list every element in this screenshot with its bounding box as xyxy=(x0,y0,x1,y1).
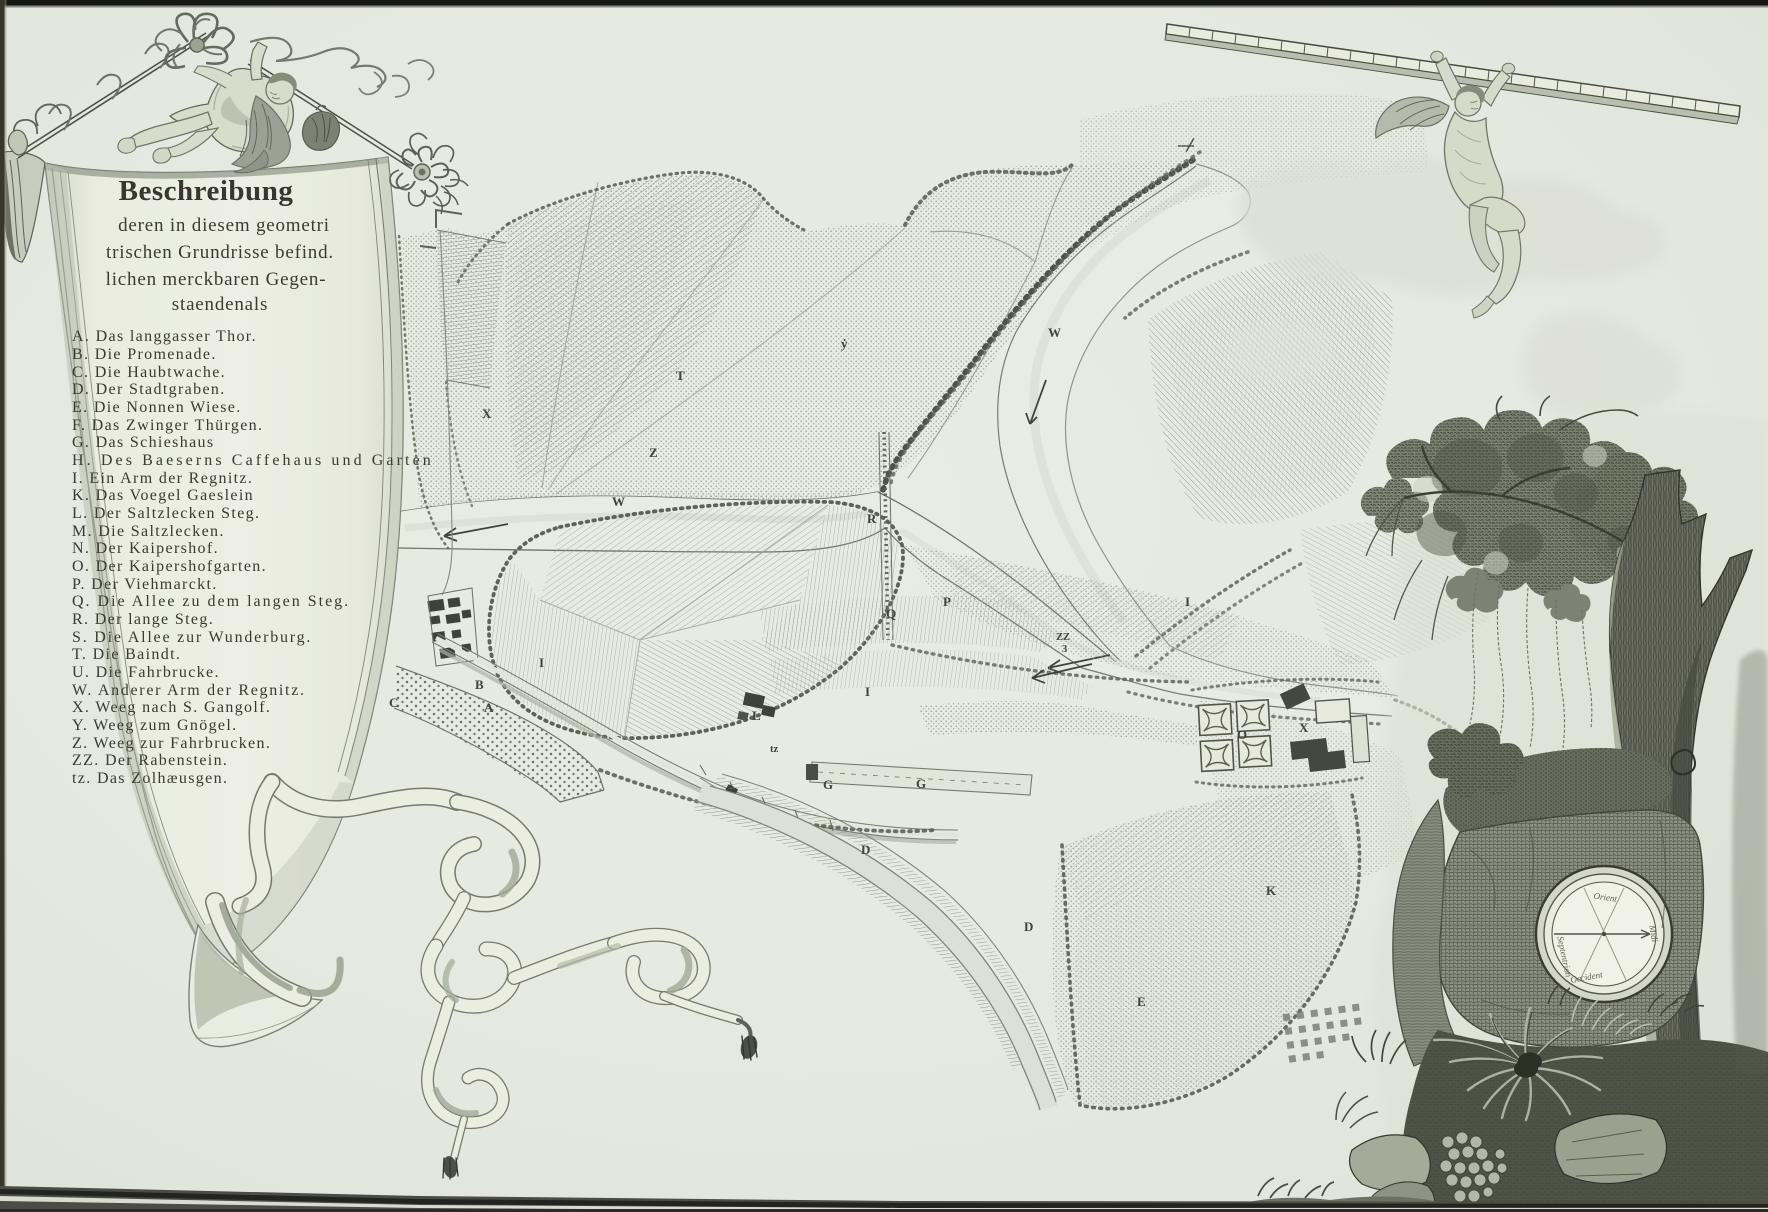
svg-text:U. Die Fahrbrucke.: U. Die Fahrbrucke. xyxy=(72,664,220,681)
svg-text:W. Anderer Arm der Regnitz.: W. Anderer Arm der Regnitz. xyxy=(72,682,306,699)
svg-text:Y. Weeg zum Gnögel.: Y. Weeg zum Gnögel. xyxy=(72,717,238,734)
svg-text:M. Die Saltzlecken.: M. Die Saltzlecken. xyxy=(72,523,225,540)
svg-text:O: O xyxy=(1237,727,1247,742)
svg-text:deren in diesem geometri: deren in diesem geometri xyxy=(118,215,330,236)
svg-text:D: D xyxy=(1024,919,1033,934)
svg-text:X. Weeg nach S. Gangolf.: X. Weeg nach S. Gangolf. xyxy=(72,699,271,716)
svg-text:N. Der Kaipershof.: N. Der Kaipershof. xyxy=(72,540,219,557)
svg-text:B. Die Promenade.: B. Die Promenade. xyxy=(72,346,217,363)
svg-text:ẏ: ẏ xyxy=(841,336,848,351)
svg-text:P: P xyxy=(943,594,951,609)
svg-text:R: R xyxy=(867,511,877,526)
svg-text:C: C xyxy=(389,695,398,710)
svg-text:trischen Grundrisse befind.: trischen Grundrisse befind. xyxy=(106,242,334,263)
svg-text:X: X xyxy=(482,406,492,421)
svg-text:S. Die Allee zur Wunderburg.: S. Die Allee zur Wunderburg. xyxy=(72,629,312,646)
svg-text:Z: Z xyxy=(649,445,658,460)
svg-text:A: A xyxy=(484,700,494,715)
svg-text:lichen merckbaren Gegen-: lichen merckbaren Gegen- xyxy=(106,269,327,290)
svg-text:D: D xyxy=(861,842,870,857)
svg-text:L. Der Saltzlecken Steg.: L. Der Saltzlecken Steg. xyxy=(72,505,260,522)
svg-text:tz: tz xyxy=(770,744,778,755)
svg-text:Q: Q xyxy=(886,606,896,621)
svg-text:D. Der Stadtgraben.: D. Der Stadtgraben. xyxy=(72,381,226,398)
svg-text:B: B xyxy=(475,677,484,692)
svg-text:X: X xyxy=(1299,720,1309,735)
svg-text:R. Der lange Steg.: R. Der lange Steg. xyxy=(72,611,214,628)
svg-text:A. Das langgasser Thor.: A. Das langgasser Thor. xyxy=(72,328,257,345)
svg-text:E. Die Nonnen Wiese.: E. Die Nonnen Wiese. xyxy=(72,399,242,416)
svg-text:G: G xyxy=(916,776,926,791)
svg-text:W: W xyxy=(1048,325,1061,340)
svg-text:Q. Die Allee zu dem langen Ste: Q. Die Allee zu dem langen Steg. xyxy=(72,593,350,610)
svg-text:I: I xyxy=(539,655,544,670)
svg-text:F. Das Zwinger Thürgen.: F. Das Zwinger Thürgen. xyxy=(72,417,263,434)
svg-text:H. Des Baeserns Caffehaus und: H. Des Baeserns Caffehaus und Garten xyxy=(72,452,434,469)
svg-text:E: E xyxy=(1137,994,1146,1009)
svg-text:K. Das Voegel Gaeslein: K. Das Voegel Gaeslein xyxy=(72,487,254,504)
svg-text:C. Die Haubtwache.: C. Die Haubtwache. xyxy=(72,364,226,381)
svg-text:I. Ein Arm der Regnitz.: I. Ein Arm der Regnitz. xyxy=(72,470,253,487)
svg-text:staendenals: staendenals xyxy=(172,294,268,315)
svg-text:tz. Das Zolhæusgen.: tz. Das Zolhæusgen. xyxy=(72,770,228,787)
svg-text:ZZ. Der Rabenstein.: ZZ. Der Rabenstein. xyxy=(72,752,228,769)
svg-text:ZZ: ZZ xyxy=(1056,632,1070,643)
svg-text:W: W xyxy=(612,494,625,509)
svg-text:Beschreibung: Beschreibung xyxy=(119,175,294,207)
svg-text:T: T xyxy=(676,368,685,383)
svg-text:T. Die Baindt.: T. Die Baindt. xyxy=(72,646,181,663)
svg-text:I: I xyxy=(865,684,870,699)
svg-text:G: G xyxy=(823,777,833,792)
svg-text:3: 3 xyxy=(1062,644,1067,655)
svg-text:L: L xyxy=(752,708,761,723)
svg-text:P. Der Viehmarckt.: P. Der Viehmarckt. xyxy=(72,576,218,593)
svg-text:I: I xyxy=(1185,594,1190,609)
svg-text:O. Der Kaipershofgarten.: O. Der Kaipershofgarten. xyxy=(72,558,267,575)
svg-text:G. Das Schieshaus: G. Das Schieshaus xyxy=(72,434,215,451)
svg-text:K: K xyxy=(1266,883,1277,898)
svg-text:Z. Weeg zur Fahrbrucken.: Z. Weeg zur Fahrbrucken. xyxy=(72,735,271,752)
